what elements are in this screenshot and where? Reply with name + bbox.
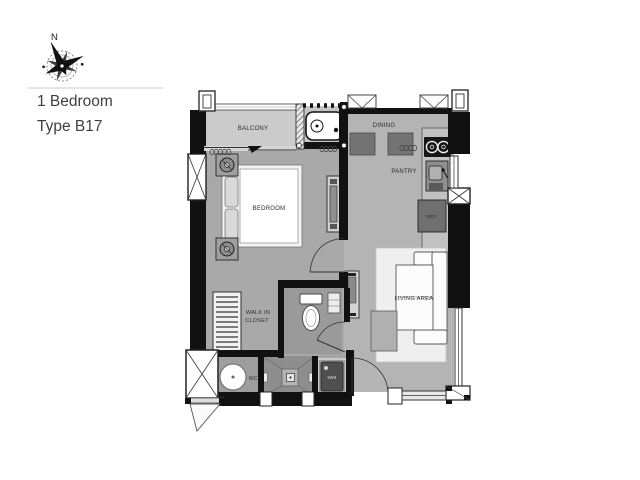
balcony-railing [202, 104, 300, 110]
room-label-closet: CLOSET [245, 318, 269, 324]
refrigerator: REF. [418, 200, 446, 232]
coffee-table [371, 311, 397, 351]
compass-north-label: N [51, 32, 58, 43]
room-label-pantry: PANTRY [391, 169, 416, 175]
window-right-upper [450, 156, 458, 188]
shaft-left [188, 154, 206, 200]
wash-basin-icon [220, 364, 246, 390]
pillow [225, 209, 238, 239]
shaft-right [448, 188, 470, 204]
room-label-wc: WC. [249, 376, 260, 382]
room-label-balcony: BALCONY [238, 126, 268, 132]
ac-unit [306, 112, 343, 140]
plan-title-line1: 1 Bedroom [37, 93, 113, 110]
wall-jut-box [452, 90, 468, 111]
room-label-wm: WM [328, 375, 337, 381]
window-bottom [402, 391, 446, 400]
bedside-table-bottom [216, 238, 238, 260]
wall-jut-box [199, 91, 215, 111]
awning-window [420, 95, 448, 108]
bedroom-tv-console [327, 176, 340, 232]
room-label-bedroom: BEDROOM [253, 206, 286, 212]
service-door [185, 398, 225, 431]
room-label-dining: DINING [373, 123, 396, 129]
louver-screen [296, 104, 304, 149]
compass-rose: N [34, 31, 90, 87]
plan-title-line2: Type B17 [37, 118, 103, 135]
room-label-living-area: LIVING AREA [395, 296, 434, 302]
window-right-lower [455, 308, 462, 388]
bath-shelf [328, 293, 340, 313]
wardrobe-rack [213, 292, 241, 352]
corner-column-box [446, 386, 470, 400]
pillow [225, 177, 238, 207]
room-label-walk-in: WALK IN [246, 310, 270, 316]
kitchen-sink-icon [426, 161, 448, 191]
floor-plan-page: N 1 Bedroom Type B17 [0, 0, 640, 480]
bedside-table-top [216, 154, 238, 176]
awning-window [348, 95, 376, 108]
stove-icon [424, 137, 451, 157]
shaft-bottom-left [186, 350, 218, 398]
room-label-ref: REF. [426, 214, 437, 220]
floor-plan-canvas: N 1 Bedroom Type B17 [0, 0, 640, 480]
